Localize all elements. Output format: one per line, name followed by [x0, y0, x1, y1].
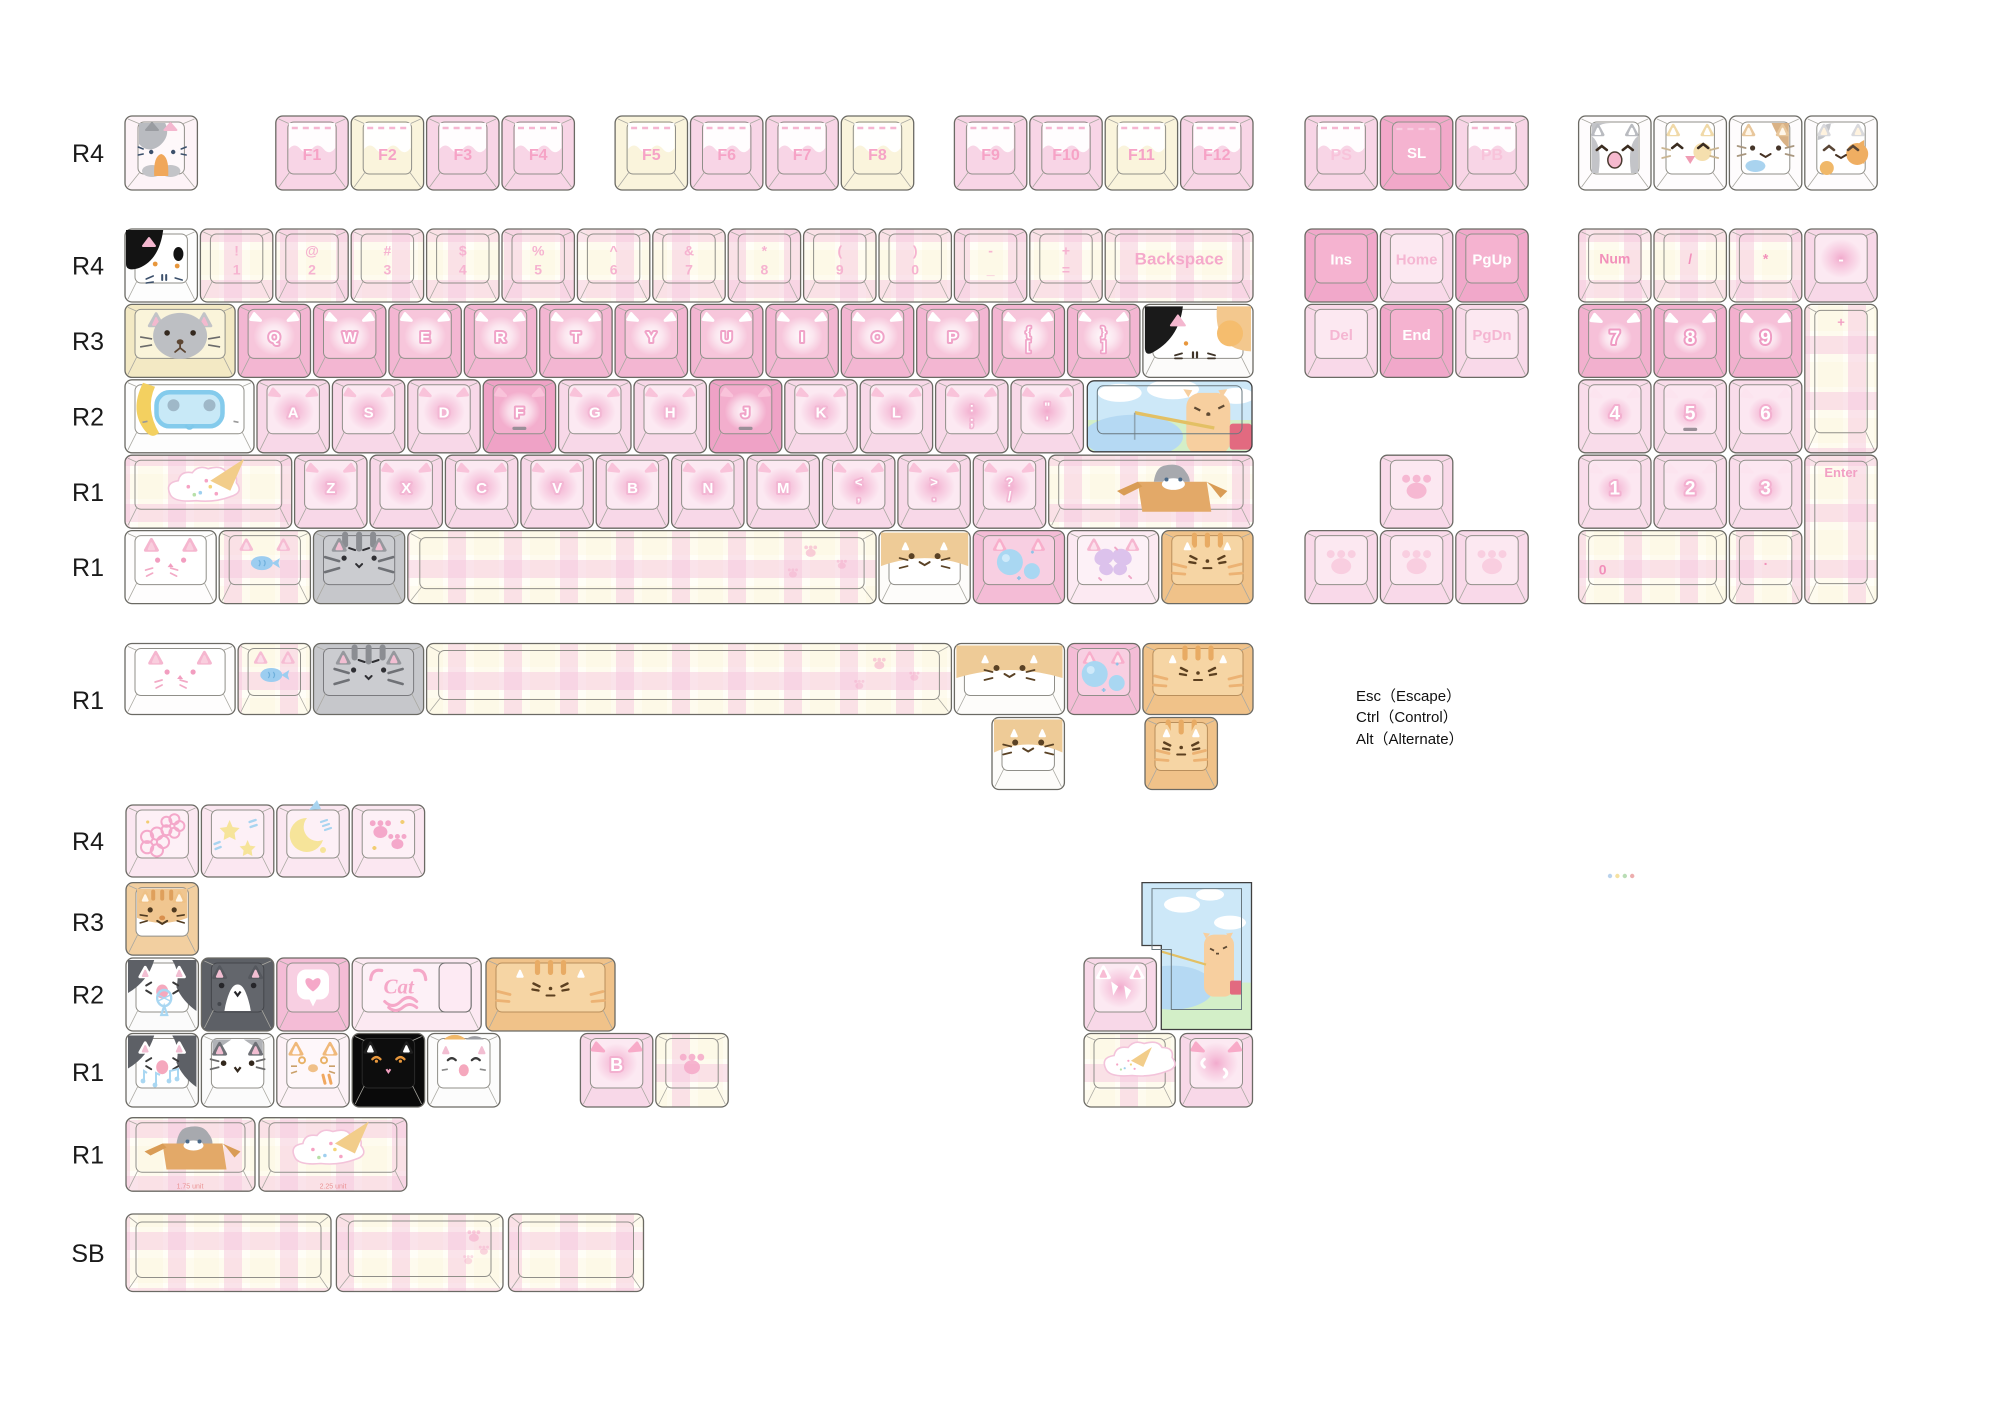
svg-text:^: ^ — [610, 243, 618, 259]
svg-text:R3: R3 — [72, 909, 104, 937]
svg-text:C: C — [476, 480, 487, 497]
svg-text:Z: Z — [326, 480, 335, 497]
svg-text:F7: F7 — [793, 147, 812, 164]
svg-text:@: @ — [305, 243, 319, 259]
svg-text:7: 7 — [685, 262, 693, 278]
svg-text:4: 4 — [1610, 403, 1621, 424]
svg-text:SL: SL — [1407, 145, 1426, 162]
svg-text:+: + — [1837, 314, 1845, 329]
svg-text:5: 5 — [534, 262, 542, 278]
svg-text:R2: R2 — [72, 404, 104, 432]
svg-text:*: * — [1763, 251, 1769, 267]
svg-text:%: % — [532, 243, 545, 259]
svg-text:J: J — [741, 405, 749, 422]
svg-text:SB: SB — [71, 1240, 104, 1268]
svg-text:,: , — [857, 489, 861, 504]
svg-text:>: > — [930, 475, 938, 490]
svg-text:?: ? — [1006, 475, 1014, 490]
svg-text:W: W — [343, 329, 358, 346]
svg-text:=: = — [1062, 262, 1070, 278]
svg-text:8: 8 — [1685, 328, 1696, 349]
svg-text:S: S — [364, 405, 374, 422]
svg-text:R1: R1 — [72, 1059, 104, 1087]
svg-text:K: K — [816, 405, 827, 422]
svg-text:Del: Del — [1330, 327, 1353, 344]
svg-text:B: B — [610, 1055, 623, 1075]
svg-text:R4: R4 — [72, 253, 104, 281]
svg-text:4: 4 — [459, 262, 467, 278]
svg-text:D: D — [439, 405, 450, 422]
svg-text:H: H — [665, 405, 676, 422]
svg-text:End: End — [1402, 327, 1430, 344]
svg-text:F10: F10 — [1052, 147, 1080, 164]
svg-text:8: 8 — [761, 262, 769, 278]
svg-text:F1: F1 — [303, 147, 322, 164]
svg-text:V: V — [552, 480, 562, 497]
svg-text:1: 1 — [233, 262, 241, 278]
svg-text:Y: Y — [646, 329, 656, 346]
svg-text:E: E — [420, 329, 430, 346]
svg-text:0: 0 — [1599, 562, 1607, 578]
svg-text:R1: R1 — [72, 479, 104, 507]
svg-text:_: _ — [986, 262, 995, 278]
svg-text:-: - — [988, 243, 993, 259]
svg-text:F6: F6 — [717, 147, 736, 164]
svg-text:Ins: Ins — [1330, 252, 1352, 269]
svg-text:[: [ — [1026, 338, 1031, 353]
svg-text:1: 1 — [1610, 479, 1621, 500]
svg-text:A: A — [288, 405, 299, 422]
svg-text:9: 9 — [836, 262, 844, 278]
svg-text:Home: Home — [1396, 252, 1438, 269]
svg-text:Cat: Cat — [384, 975, 416, 999]
svg-text:0: 0 — [911, 262, 919, 278]
svg-text:/: / — [1008, 489, 1012, 504]
svg-text:2: 2 — [308, 262, 316, 278]
svg-text:3: 3 — [1760, 479, 1771, 500]
svg-text:]: ] — [1102, 338, 1106, 353]
svg-text:$: $ — [459, 243, 467, 259]
svg-text:Q: Q — [268, 329, 280, 346]
svg-text:R4: R4 — [72, 140, 104, 168]
svg-text:L: L — [892, 405, 901, 422]
svg-text:PgUp: PgUp — [1472, 252, 1511, 269]
svg-text:{: { — [1026, 324, 1031, 339]
svg-text:F3: F3 — [453, 147, 472, 164]
svg-text::: : — [970, 399, 974, 414]
svg-text:5: 5 — [1685, 403, 1696, 424]
svg-text:;: ; — [970, 413, 974, 428]
svg-text:N: N — [702, 480, 713, 497]
svg-text:": " — [1044, 399, 1050, 414]
svg-text:P: P — [948, 329, 958, 346]
svg-text:F8: F8 — [868, 147, 887, 164]
svg-text:3: 3 — [384, 262, 392, 278]
svg-text:F: F — [515, 405, 524, 422]
svg-text:2.25 unit: 2.25 unit — [320, 1184, 347, 1191]
svg-text:.: . — [1764, 552, 1768, 568]
svg-text:PS: PS — [1331, 147, 1353, 164]
svg-text:Backspace: Backspace — [1135, 250, 1224, 269]
svg-text:/: / — [1688, 251, 1692, 267]
svg-text:G: G — [589, 405, 601, 422]
svg-text:Ctrl（Control）: Ctrl（Control） — [1356, 709, 1458, 726]
svg-text:<: < — [855, 475, 863, 490]
svg-text:9: 9 — [1760, 328, 1771, 349]
svg-text:X: X — [401, 480, 411, 497]
svg-text:#: # — [384, 243, 392, 259]
svg-text:R1: R1 — [72, 687, 104, 715]
svg-text:F2: F2 — [378, 147, 397, 164]
svg-text:F11: F11 — [1128, 147, 1155, 164]
svg-text:7: 7 — [1610, 328, 1621, 349]
svg-text:': ' — [1046, 413, 1049, 428]
svg-text:2: 2 — [1685, 479, 1696, 500]
svg-text:-: - — [1838, 252, 1843, 269]
svg-text:F5: F5 — [642, 147, 661, 164]
svg-text:*: * — [762, 243, 768, 259]
svg-text:!: ! — [234, 243, 239, 259]
svg-text:Enter: Enter — [1824, 465, 1857, 480]
svg-text:Num: Num — [1599, 251, 1630, 267]
svg-text:(: ( — [837, 243, 842, 259]
svg-text:&: & — [684, 243, 694, 259]
svg-text:R2: R2 — [72, 982, 104, 1010]
svg-text:O: O — [872, 329, 884, 346]
svg-text:R1: R1 — [72, 554, 104, 582]
svg-text:1.75 unit: 1.75 unit — [177, 1184, 204, 1191]
svg-text:F9: F9 — [981, 147, 1000, 164]
svg-text:PB: PB — [1481, 147, 1503, 164]
svg-text:+: + — [1062, 243, 1070, 259]
svg-text:R4: R4 — [72, 828, 104, 856]
svg-text:U: U — [721, 329, 732, 346]
svg-text:I: I — [800, 329, 804, 346]
svg-text:R3: R3 — [72, 328, 104, 356]
svg-text:M: M — [777, 480, 790, 497]
svg-text:T: T — [571, 329, 580, 346]
svg-text:B: B — [627, 480, 638, 497]
svg-text:Esc（Escape）: Esc（Escape） — [1356, 688, 1461, 705]
svg-text:R1: R1 — [72, 1142, 104, 1170]
svg-text:6: 6 — [1760, 403, 1771, 424]
svg-text:}: } — [1101, 324, 1106, 339]
svg-text:F4: F4 — [529, 147, 548, 164]
svg-text:6: 6 — [610, 262, 618, 278]
svg-text:PgDn: PgDn — [1472, 327, 1511, 344]
svg-text:): ) — [913, 243, 918, 259]
svg-text:.: . — [932, 489, 936, 504]
svg-text:F12: F12 — [1203, 147, 1231, 164]
svg-text:R: R — [495, 329, 506, 346]
svg-text:Alt（Alternate）: Alt（Alternate） — [1356, 731, 1464, 748]
